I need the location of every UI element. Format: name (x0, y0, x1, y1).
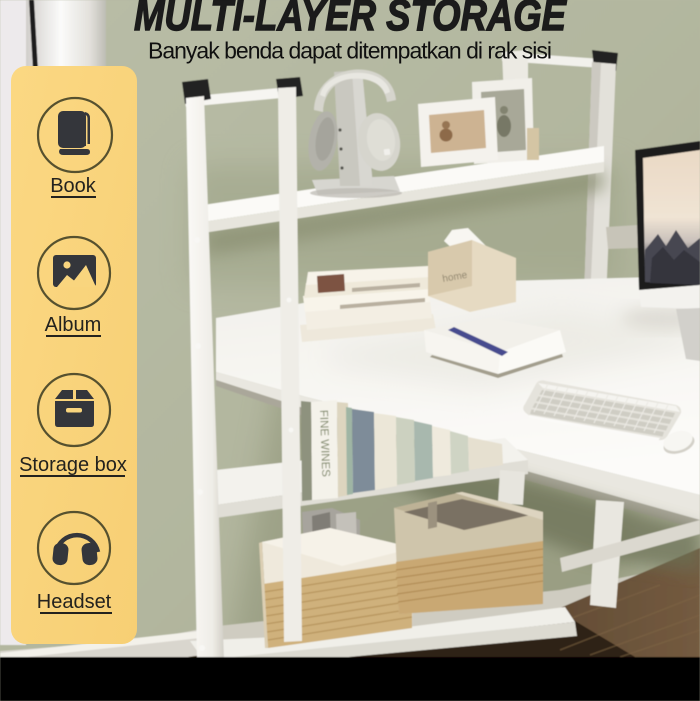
svg-text:Banyak benda dapat ditempatkan: Banyak benda dapat ditempatkan di rak si… (148, 38, 552, 64)
svg-text:Album: Album (45, 314, 102, 336)
svg-text:MULTI-LAYER STORAGE: MULTI-LAYER STORAGE (134, 0, 567, 40)
svg-text:Headset: Headset (37, 591, 112, 613)
svg-text:Book: Book (50, 175, 97, 197)
svg-text:Storage box: Storage box (19, 454, 127, 476)
svg-text:FINE WINES: FINE WINES (317, 410, 331, 478)
